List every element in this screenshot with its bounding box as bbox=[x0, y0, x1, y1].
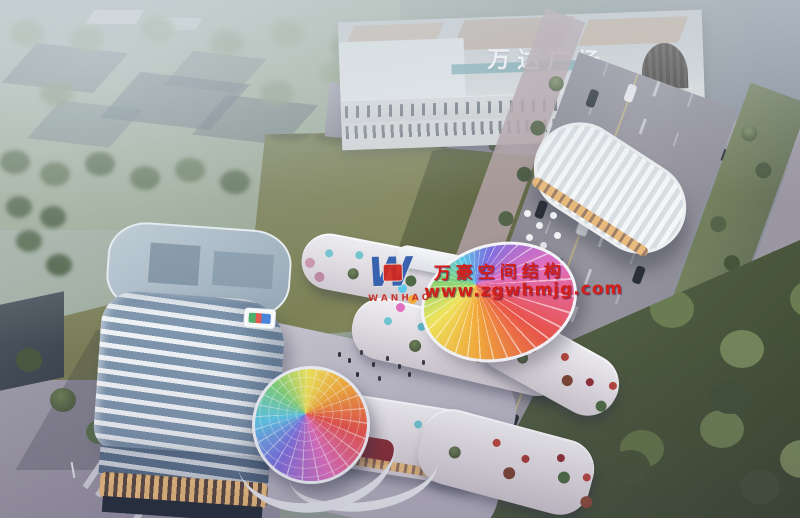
teal-umbrellas bbox=[324, 249, 333, 258]
white-parasol-terrace bbox=[524, 210, 531, 217]
park-building-roof bbox=[152, 18, 203, 30]
park-building-roof bbox=[86, 10, 144, 24]
logo-color-marks bbox=[248, 313, 271, 325]
park-building bbox=[27, 100, 143, 147]
teal-umbrellas bbox=[383, 316, 393, 326]
park-tree-row bbox=[0, 150, 30, 174]
car bbox=[623, 83, 638, 103]
car bbox=[534, 200, 549, 220]
car bbox=[631, 265, 646, 285]
teal-umbrellas bbox=[414, 420, 423, 429]
terrace-trees bbox=[347, 267, 360, 280]
dark-warehouse bbox=[0, 291, 64, 391]
watermark-url: www.zgwhmjg.com bbox=[424, 279, 623, 302]
verge-tree-column bbox=[739, 123, 760, 144]
tower-logo-badge bbox=[243, 307, 276, 329]
terrace-trees bbox=[447, 445, 462, 460]
car bbox=[585, 88, 600, 108]
red-umbrellas bbox=[492, 438, 502, 448]
watermark-logo-red-box bbox=[383, 263, 403, 281]
watermark-brand-latin: WANHAO bbox=[368, 293, 432, 304]
people-cluster bbox=[338, 352, 341, 357]
plaza-trees-bottom-left bbox=[50, 388, 76, 412]
pink-trees bbox=[304, 257, 316, 269]
watermark: W WANHAO 万豪空间结构 www.zgwhmjg.com bbox=[367, 250, 608, 316]
park-building bbox=[2, 43, 129, 93]
architectural-rendering: 万达广场 bbox=[0, 0, 800, 518]
park-tree-edge bbox=[6, 196, 32, 218]
terrace-trees bbox=[408, 339, 422, 353]
park-tree-cluster bbox=[10, 20, 44, 46]
roof-structure bbox=[212, 251, 274, 289]
roof-structure bbox=[148, 243, 201, 286]
